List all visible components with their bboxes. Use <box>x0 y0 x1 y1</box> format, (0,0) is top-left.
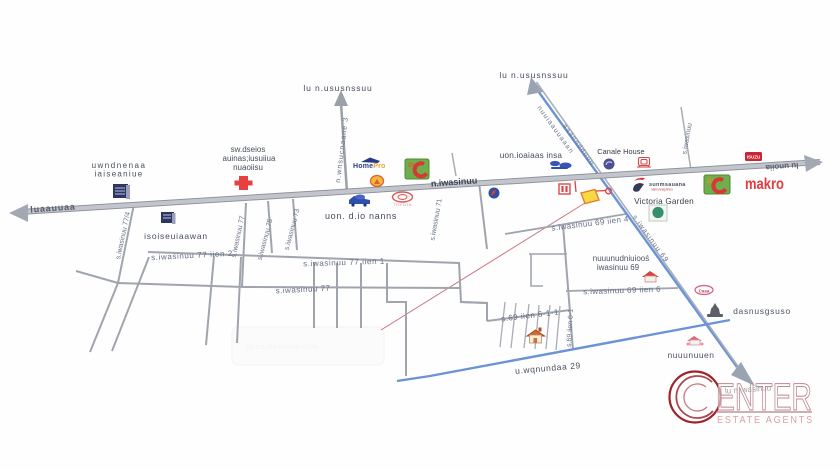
svg-text:uon.ioaiaas insa: uon.ioaiaas insa <box>500 151 563 160</box>
svg-text:iwasinuu 69: iwasinuu 69 <box>597 263 640 272</box>
svg-text:Casa: Casa <box>699 289 710 294</box>
svg-text:sw.dseios: sw.dseios <box>231 145 266 154</box>
svg-text:uon. d.io nanns: uon. d.io nanns <box>325 211 397 221</box>
svg-text:makro: makro <box>745 176 784 193</box>
svg-text:lu n.ususnssuu: lu n.ususnssuu <box>303 83 372 93</box>
svg-text:namsnnaphnnu: namsnnaphnnu <box>651 188 673 192</box>
svg-text:isoiseuiaawan: isoiseuiaawan <box>144 231 208 241</box>
svg-text:TOYOTA: TOYOTA <box>393 202 412 207</box>
svg-text:auinas;iusuiiua: auinas;iusuiiua <box>223 154 276 163</box>
svg-text:nuuunuuen: nuuunuuen <box>667 350 714 360</box>
svg-text:dasnusgsuso: dasnusgsuso <box>733 306 791 316</box>
svg-text:ESTATE AGENTS: ESTATE AGENTS <box>717 415 814 426</box>
svg-text:ISUZU: ISUZU <box>747 155 761 160</box>
svg-text:HomePro: HomePro <box>353 163 386 170</box>
svg-text:nuaoiisu: nuaoiisu <box>233 163 263 172</box>
svg-text:iaiseaniue: iaiseaniue <box>94 170 143 179</box>
svg-text:Canale House: Canale House <box>597 147 644 156</box>
svg-text:ENTER: ENTER <box>716 377 812 419</box>
svg-text:lu n.ususnssuu: lu n.ususnssuu <box>499 70 568 80</box>
svg-text:uu iusudu nnsvuu uuax: uu iusudu nnsvuu uuax <box>246 344 318 351</box>
svg-text:nuuunudniuiooś: nuuunudniuiooś <box>593 254 650 263</box>
